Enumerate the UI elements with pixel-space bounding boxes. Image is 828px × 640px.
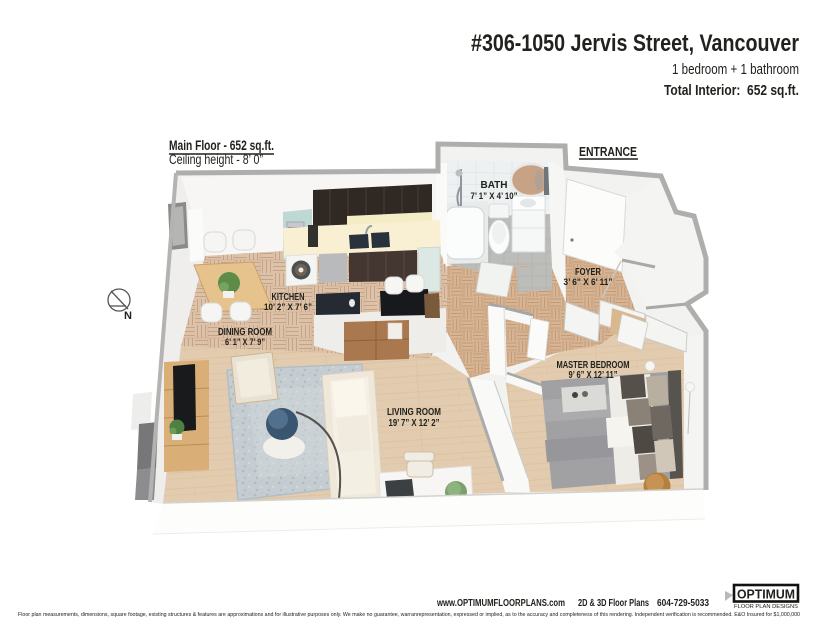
svg-text:19’ 7” X 12’ 2”: 19’ 7” X 12’ 2” (389, 418, 440, 429)
svg-text:9’ 6” X 12’ 11”: 9’ 6” X 12’ 11” (569, 370, 618, 381)
svg-text:2D & 3D Floor Plans: 2D & 3D Floor Plans (578, 598, 649, 609)
svg-text:604-729-5033: 604-729-5033 (657, 598, 709, 609)
svg-text:N: N (124, 310, 132, 322)
svg-text:Floor plan measurements, dimen: Floor plan measurements, dimensions, squ… (18, 612, 800, 618)
svg-text:Total Interior: 652 sq.ft.: Total Interior: 652 sq.ft. (664, 82, 799, 99)
svg-text:OPTIMUM: OPTIMUM (737, 587, 795, 602)
svg-text:Main Floor - 652 sq.ft.: Main Floor - 652 sq.ft. (169, 137, 274, 153)
svg-text:6’ 1” X 7’ 9”: 6’ 1” X 7’ 9” (225, 337, 265, 348)
svg-text:www.OPTIMUMFLOORPLANS.com: www.OPTIMUMFLOORPLANS.com (436, 598, 565, 609)
svg-text:3’ 6” X 6’ 11”: 3’ 6” X 6’ 11” (564, 277, 613, 288)
svg-text:#306-1050 Jervis Street, Vanco: #306-1050 Jervis Street, Vancouver (471, 30, 799, 57)
svg-text:FLOOR PLAN DESIGNS: FLOOR PLAN DESIGNS (734, 604, 798, 610)
svg-text:1 bedroom + 1 bathroom: 1 bedroom + 1 bathroom (672, 62, 799, 78)
svg-text:ENTRANCE: ENTRANCE (579, 145, 637, 159)
svg-text:10’ 2” X 7’ 6”: 10’ 2” X 7’ 6” (264, 302, 312, 313)
svg-text:7’ 1” X 4’ 10”: 7’ 1” X 4’ 10” (471, 191, 518, 202)
svg-text:BATH: BATH (481, 180, 508, 191)
svg-text:Ceiling height - 8’ 0”: Ceiling height - 8’ 0” (169, 152, 263, 167)
svg-text:LIVING ROOM: LIVING ROOM (387, 406, 441, 418)
